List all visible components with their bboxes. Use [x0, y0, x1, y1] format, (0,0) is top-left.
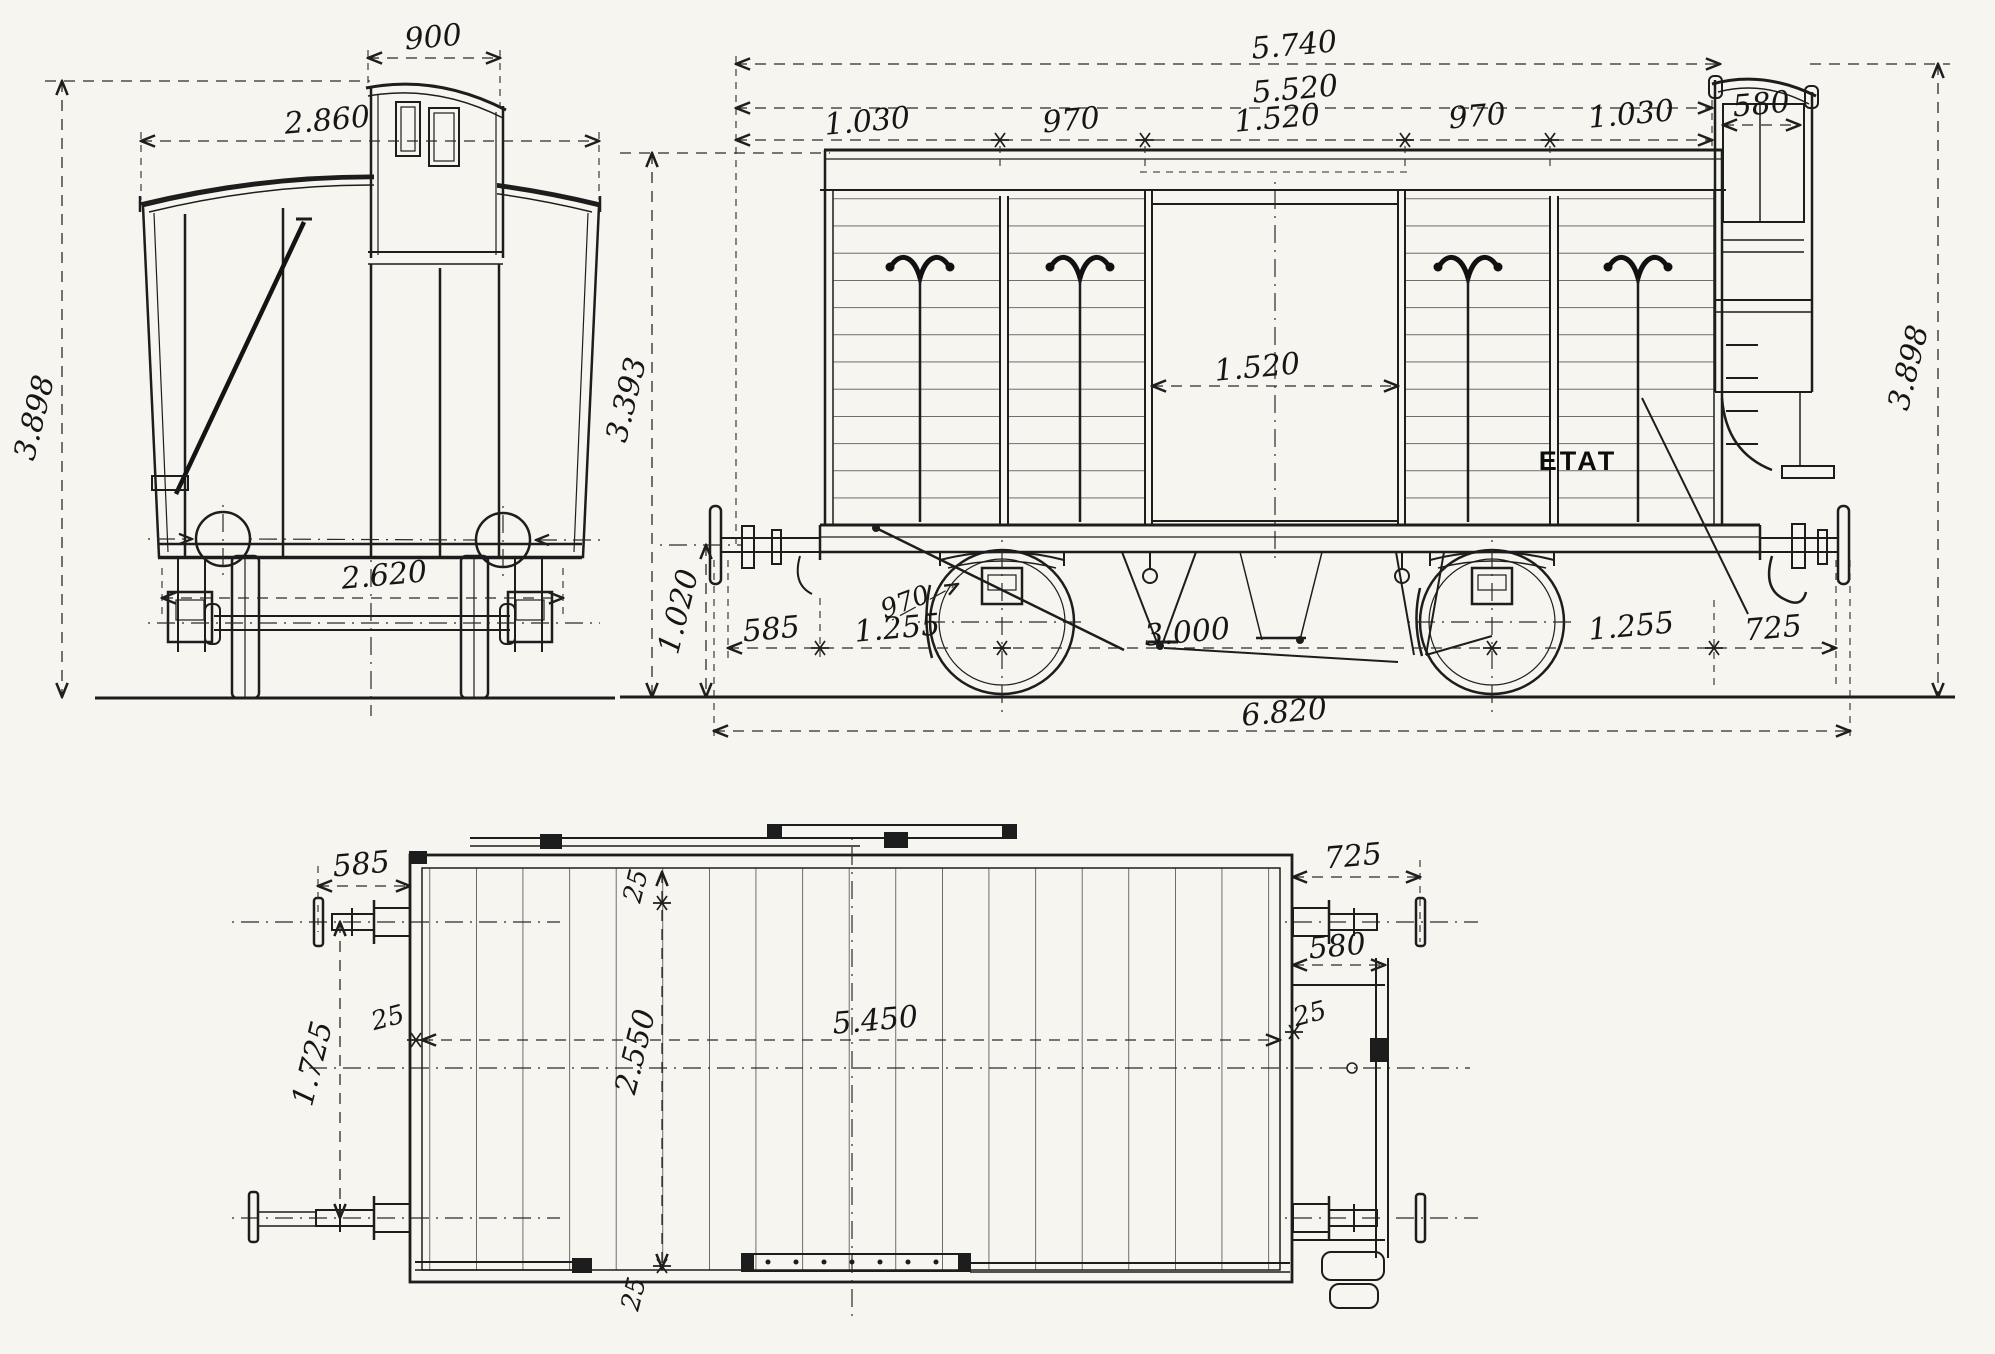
handbrake-bracket — [1370, 1038, 1387, 1062]
side-bay-2 — [1008, 196, 1145, 525]
plan-end-step — [1330, 1284, 1378, 1308]
dim-side-lookout-width: 580 — [1731, 85, 1791, 125]
dim-side-overall-height: 3.898 — [1881, 322, 1936, 414]
dim-side-bay1: 1.030 — [823, 100, 912, 142]
side-buffer-left — [710, 506, 820, 594]
dim-side-wheel-to-end: 1.255 — [1587, 605, 1676, 647]
dim-end-lookout-width: 900 — [403, 18, 463, 58]
dim-plan-platform-depth: 580 — [1307, 927, 1367, 967]
side-dimensions-bottom: 585 1.255 3.000 1.255 725 6.820 — [714, 560, 1850, 742]
dim-side-buffer-to-headstock: 585 — [741, 610, 801, 650]
dim-plan-wall-left: 25 — [367, 1000, 408, 1038]
dim-side-wheelbase: 3.000 — [1143, 611, 1232, 653]
dim-side-buffer-height: 1.020 — [651, 566, 706, 658]
dim-side-headstock-to-wheel: 1.255 — [853, 607, 942, 649]
dim-side-bay3: 1.520 — [1233, 97, 1322, 139]
plan-buffer-bottom-left — [249, 1192, 410, 1242]
dim-side-end-overhang: 725 — [1743, 609, 1803, 649]
dim-end-axle-width: 2.620 — [339, 554, 429, 596]
lookout-step — [1782, 466, 1834, 478]
dim-side-bay2: 970 — [1041, 101, 1101, 141]
technical-drawing: 900 2.860 3.898 2.620 — [0, 0, 1995, 1354]
dim-end-overall-height: 3.898 — [7, 372, 62, 464]
side-bay-1 — [833, 196, 1000, 525]
coupling-hook — [1769, 556, 1806, 603]
etat-marking: ETAT — [1539, 446, 1618, 476]
dim-plan-buffer-spacing: 1.725 — [285, 1018, 340, 1110]
dim-side-bay5: 1.030 — [1587, 93, 1676, 135]
plan-buffer-top-left — [314, 898, 410, 946]
dim-side-bay4: 970 — [1447, 97, 1507, 137]
side-door-handles — [886, 257, 1673, 522]
drawing-sheet: 900 2.860 3.898 2.620 — [0, 0, 1995, 1354]
dim-end-body-width: 2.860 — [282, 99, 372, 141]
side-sliding-door: 1.520 — [1140, 172, 1410, 583]
end-diagonal-brace — [176, 222, 304, 494]
plan-view: 585 725 580 25 1.725 25 5.450 2.550 25 2… — [232, 825, 1478, 1322]
dim-side-length-over-buffers: 6.820 — [1240, 691, 1329, 733]
dim-plan-wall-bottom: 25 — [615, 1274, 652, 1314]
dim-side-door-opening: 1.520 — [1213, 346, 1302, 388]
dim-plan-interior-length: 5.450 — [831, 999, 920, 1041]
plan-floor-planks — [422, 868, 1280, 1270]
dim-plan-buffer-right: 725 — [1323, 837, 1383, 877]
dim-plan-buffer-left: 585 — [331, 845, 391, 885]
dim-plan-wall-right: 25 — [1289, 996, 1330, 1034]
dim-side-body-height: 3.393 — [599, 354, 654, 446]
side-view: 1.520 ETAT — [599, 24, 1955, 742]
dim-side-length-over-ends: 5.740 — [1250, 24, 1339, 66]
plan-buffer-bottom-right — [1293, 1194, 1425, 1308]
end-view: 900 2.860 3.898 2.620 — [7, 18, 615, 716]
end-dimensions: 900 2.860 3.898 2.620 — [7, 18, 599, 697]
plan-end-step — [1322, 1252, 1384, 1280]
side-bay-4 — [1405, 196, 1550, 525]
end-wall-posts — [185, 208, 499, 556]
